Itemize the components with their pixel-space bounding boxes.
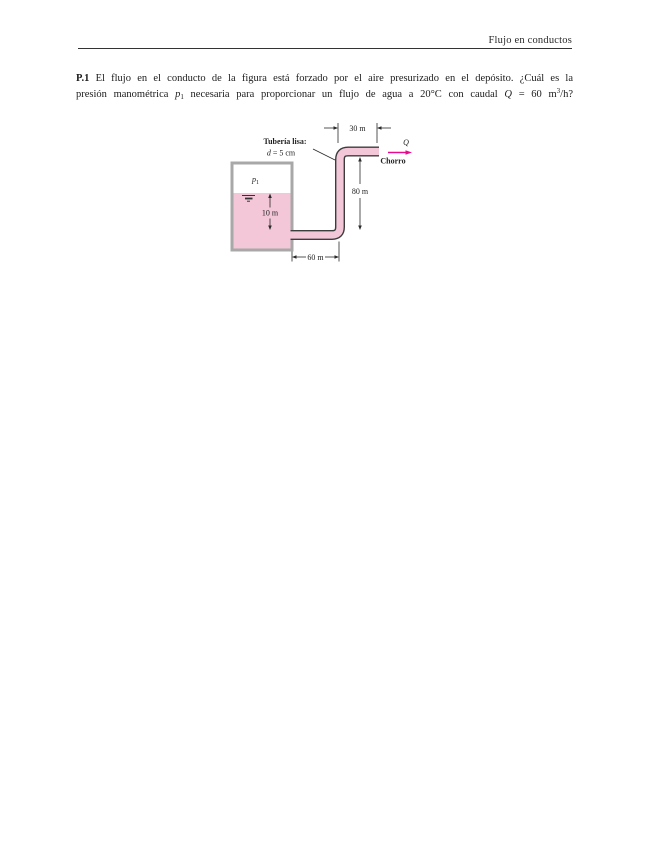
problem-text-2c: = 60 m xyxy=(512,89,557,100)
problem-line-2: presión manométrica p1 necesaria para pr… xyxy=(76,87,573,103)
figure-diagram: p1 10 m 60 m 80 m 30 m Tubería li xyxy=(225,115,425,275)
dim-80m: 80 m xyxy=(352,157,369,230)
dim-80m-label: 80 m xyxy=(352,187,369,196)
flow-symbol: Q xyxy=(504,89,512,100)
problem-text-1: El flujo en el conducto de la figura est… xyxy=(89,73,573,84)
pipe-pointer-line xyxy=(313,149,335,160)
flow-rate-label: Q xyxy=(403,138,409,147)
dim-60m: 60 m xyxy=(292,242,339,262)
pipe-label-diameter: d= 5 cm xyxy=(267,149,296,158)
problem-text-2b: necesaria para proporcionar un flujo de … xyxy=(184,89,505,100)
pipe-callout: Tubería lisa: d= 5 cm xyxy=(263,137,335,160)
problem-line-1: P.1 El flujo en el conducto de la figura… xyxy=(76,71,573,87)
header-rule xyxy=(78,48,572,49)
tank-water xyxy=(234,193,291,249)
jet-label: Chorro xyxy=(380,157,405,166)
dim-10m-label: 10 m xyxy=(262,209,279,218)
problem-text-2d: /h? xyxy=(560,89,573,100)
problem-text-2a: presión manométrica xyxy=(76,89,175,100)
document-page: { "header": { "title": "Flujo en conduct… xyxy=(0,0,655,848)
outlet-jet: Q Chorro xyxy=(380,138,412,166)
pipe-label-title: Tubería lisa: xyxy=(263,137,306,146)
dim-30m: 30 m xyxy=(324,123,391,143)
problem-number: P.1 xyxy=(76,73,89,84)
flow-arrow-head xyxy=(406,150,413,155)
problem-paragraph: P.1 El flujo en el conducto de la figura… xyxy=(76,71,573,102)
dim-30m-label: 30 m xyxy=(349,124,366,133)
page-title: Flujo en conductos xyxy=(0,35,572,46)
dim-60m-label: 60 m xyxy=(307,253,324,262)
